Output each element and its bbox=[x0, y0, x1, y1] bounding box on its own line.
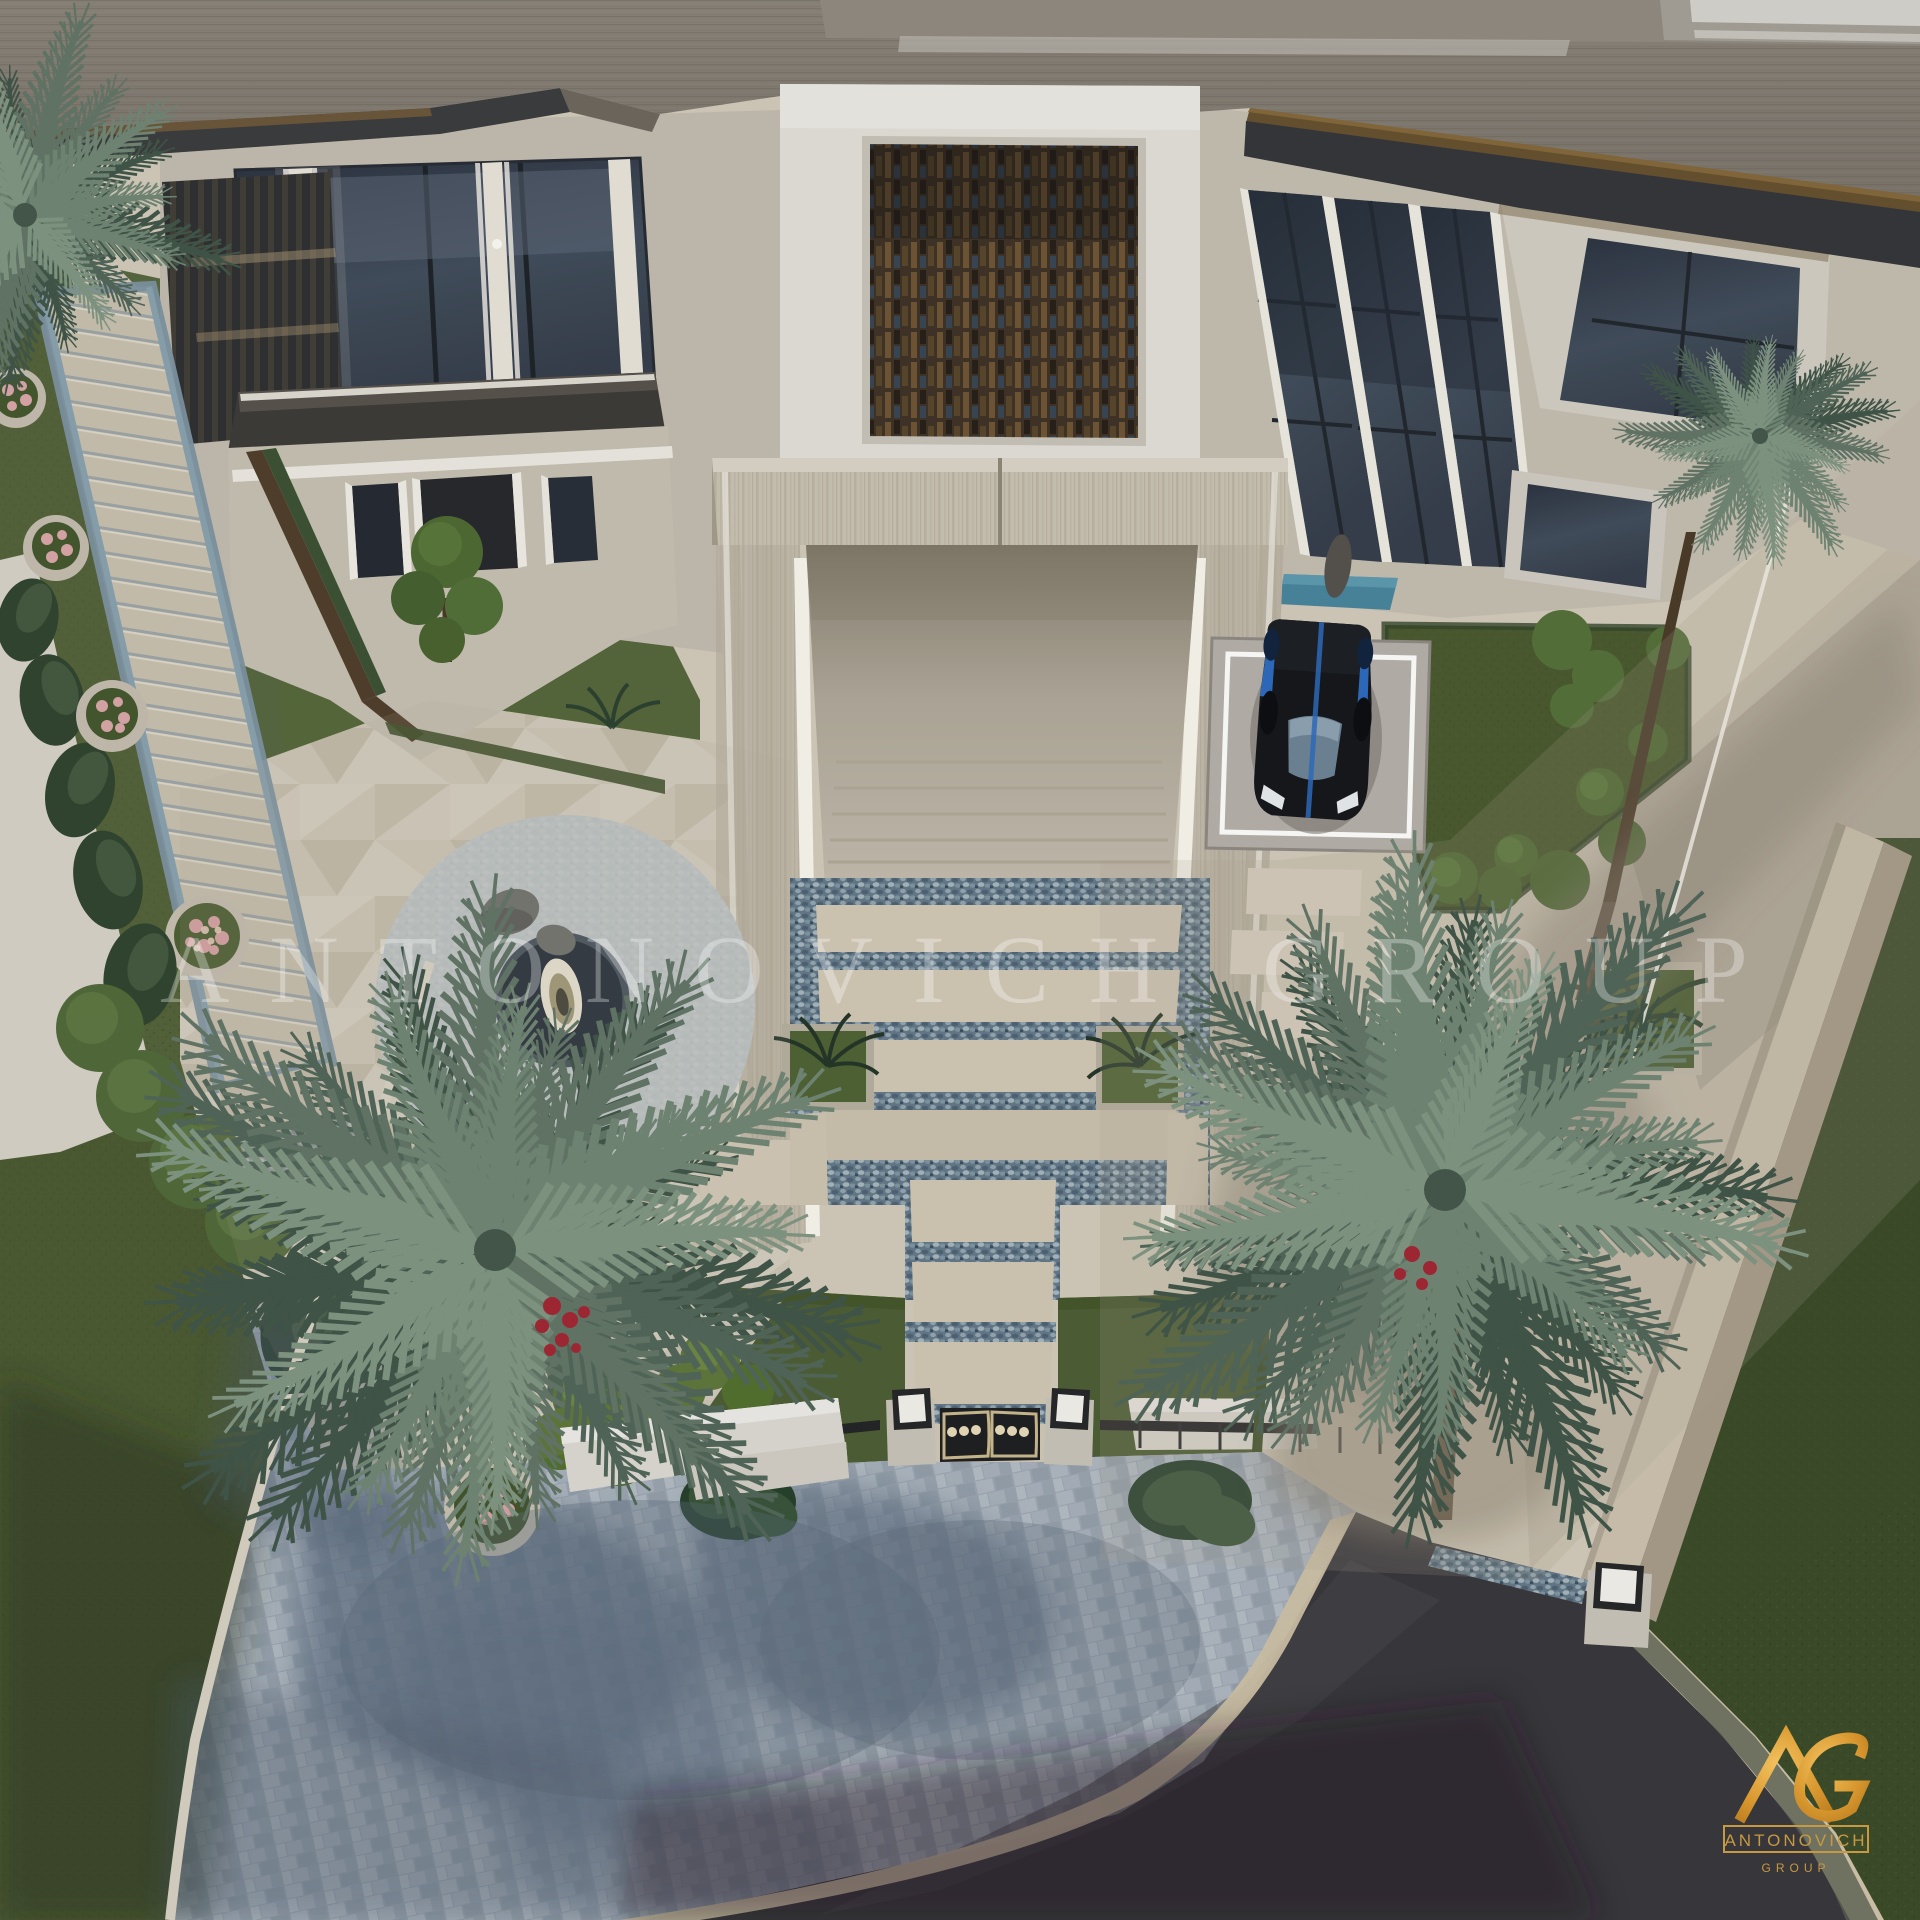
svg-text:GROUP: GROUP bbox=[1761, 1861, 1830, 1875]
svg-text:ANTONOVICH GROUP: ANTONOVICH GROUP bbox=[160, 916, 1788, 1023]
svg-text:ANTONOVICH: ANTONOVICH bbox=[1724, 1831, 1867, 1850]
